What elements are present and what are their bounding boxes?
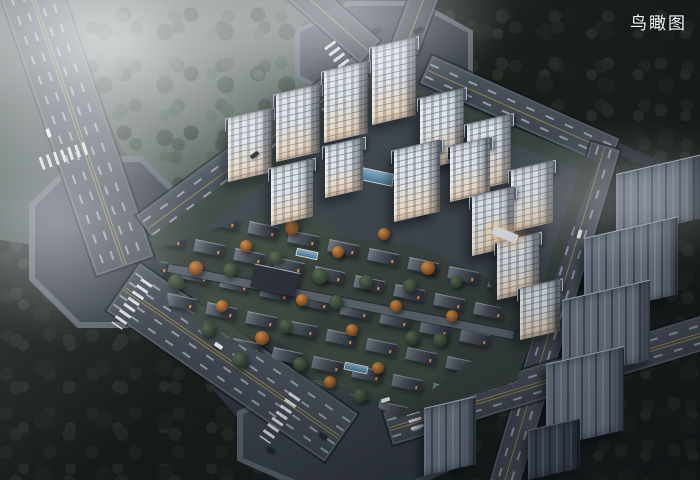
villa-rowhouse bbox=[365, 338, 397, 356]
villa-rowhouse bbox=[245, 311, 277, 329]
villa-rowhouse bbox=[311, 356, 343, 374]
tower-facade bbox=[325, 137, 363, 198]
green-tree bbox=[312, 268, 328, 284]
context-building bbox=[424, 396, 476, 476]
autumn-tree bbox=[332, 246, 344, 258]
green-tree bbox=[433, 333, 447, 347]
autumn-tree bbox=[216, 300, 228, 312]
tower-facade bbox=[276, 84, 320, 162]
green-tree bbox=[168, 274, 184, 290]
tower-facade bbox=[520, 279, 560, 340]
autumn-tree bbox=[390, 300, 402, 312]
autumn-tree bbox=[378, 228, 390, 240]
autumn-tree bbox=[296, 294, 308, 306]
green-tree bbox=[359, 275, 373, 289]
autumn-tree bbox=[189, 261, 203, 275]
autumn-tree bbox=[324, 376, 336, 388]
tower-facade bbox=[271, 158, 313, 226]
aerial-rendering: 鸟瞰图 bbox=[0, 0, 700, 480]
view-title: 鸟瞰图 bbox=[630, 9, 687, 34]
green-tree bbox=[329, 295, 343, 309]
tower-facade bbox=[324, 61, 368, 143]
autumn-tree bbox=[372, 362, 384, 374]
villa-rowhouse bbox=[165, 293, 197, 311]
autumn-tree bbox=[285, 221, 299, 235]
autumn-tree bbox=[421, 261, 435, 275]
villa-rowhouse bbox=[367, 248, 399, 266]
tower-facade bbox=[394, 139, 440, 222]
green-tree bbox=[269, 251, 283, 265]
autumn-tree bbox=[346, 324, 358, 336]
green-tree bbox=[403, 279, 417, 293]
tower-facade bbox=[228, 108, 272, 182]
green-tree bbox=[405, 331, 419, 345]
green-tree bbox=[353, 389, 367, 403]
green-tree bbox=[201, 323, 215, 337]
autumn-tree bbox=[446, 310, 458, 322]
villa-rowhouse bbox=[405, 347, 437, 365]
autumn-tree bbox=[240, 240, 252, 252]
green-tree bbox=[223, 263, 237, 277]
autumn-tree bbox=[255, 331, 269, 345]
villa-rowhouse bbox=[433, 293, 465, 311]
villa-rowhouse bbox=[193, 239, 225, 257]
villa-rowhouse bbox=[391, 374, 423, 392]
green-tree bbox=[293, 357, 307, 371]
tower-facade bbox=[511, 160, 553, 232]
green-tree bbox=[232, 352, 248, 368]
green-tree bbox=[450, 276, 462, 288]
tower-facade bbox=[372, 37, 416, 125]
green-tree bbox=[279, 319, 293, 333]
